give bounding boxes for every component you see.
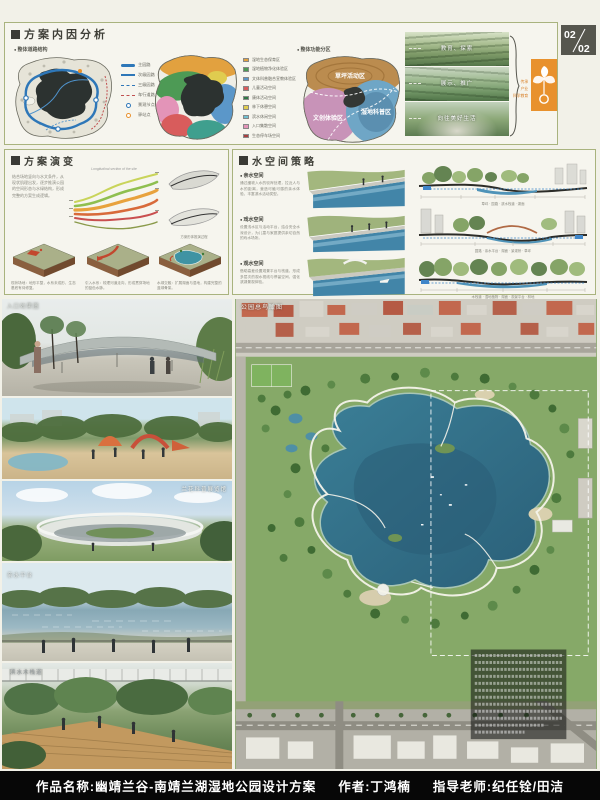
design-notes-panel xyxy=(471,650,567,740)
water-item-label: 观水空间 xyxy=(240,260,300,267)
legend-item: 儿童活动空间 xyxy=(243,84,296,94)
road-legend: 主园路 次级园路 三级园路 车行道路 景观节点 驿站点 xyxy=(121,60,155,120)
water-item-text: 设置浅水区与活动平台，结合安全水深设计，为儿童与家庭提供亲切自然的戏水场所。 xyxy=(240,225,300,242)
section-water-strategy: 水空间策略 亲水空间 通过缓坡入水的驳岸处理，拉近人与水的距离，营造可触可感的亲… xyxy=(232,149,596,295)
aerial-caption: 公园总鸟瞰图 xyxy=(241,302,283,311)
legend-item: 文体科普融合宣教体验区 xyxy=(243,74,296,84)
evolution-step-2 xyxy=(85,242,151,280)
page-number-badge: 02 02 xyxy=(561,25,596,55)
section-scheme-analysis: 方案内因分析 整体道路结构 主园路 次级园路 三级园路 车行道路 景观节点 驿站… xyxy=(4,22,558,145)
footer-project-name: 作品名称:幽靖兰谷-南靖兰湖湿地公园设计方案 xyxy=(36,776,316,795)
section-label: 草坪 · 园路 · 滨水栈道 · 湖面 xyxy=(415,201,591,206)
step-caption: 水绿交融：扩展湖面与湿地，构建完整的蓝绿骨架。 xyxy=(157,281,223,291)
render-orchid-pavilion: 兰花科普展览馆 xyxy=(2,481,232,561)
water-item-text: 借助高差设置观景平台与栈道，形成多层次的观水视线与停留空间，强化滨湖景观体验。 xyxy=(240,269,300,286)
footer-author: 作者:丁鸿楠 xyxy=(338,776,411,795)
photo-caption: 教育、探索 xyxy=(405,44,509,52)
boardwalk-illustration xyxy=(2,663,232,769)
analysis-title: 方案内因分析 xyxy=(24,26,108,42)
section-marker-icon xyxy=(11,30,20,39)
footer-bar: 作品名称:幽靖兰谷-南靖兰湖湿地公园设计方案 作者:丁鸿楠 指导老师:纪任铨/田… xyxy=(0,771,600,800)
page-total: 02 xyxy=(578,43,590,55)
reference-photo-education: 教育、探索 xyxy=(405,32,509,66)
terrain-diagram-3 xyxy=(305,256,409,298)
evolution-intro: 结合场地竖向与水文条件，从现状肌理出发，逐步推演公园的空间形态与水绿结构，形成完… xyxy=(12,174,64,199)
water-item-label: 戏水空间 xyxy=(240,216,300,223)
playground-illustration xyxy=(2,398,232,479)
sketch-caption: 方案形体推演过程 xyxy=(180,234,208,239)
legend-item: 次级园路 xyxy=(121,70,155,80)
function-zone-map xyxy=(151,52,239,144)
reference-photo-display: 展示、推广 xyxy=(405,67,509,101)
platform-illustration xyxy=(2,563,232,661)
render-entrance: 入口效果图 xyxy=(2,299,232,396)
section-drawing-2: 园路 · 亲水平台 · 湖面 · 景观桥 · 草坪 xyxy=(415,207,591,253)
zoning-map: 草坪活动区 文创体验区 湿地科普区 xyxy=(298,52,404,146)
road-structure-label: 整体道路结构 xyxy=(14,46,48,53)
legend-item: 景观节点 xyxy=(121,100,155,110)
step-caption: 引入水系：梳理河道走向，形成贯穿场地的蓝色水脉。 xyxy=(85,281,151,291)
legend-item: 湿地植物净化体验区 xyxy=(243,65,296,75)
keyword: 传承 xyxy=(513,79,528,86)
legend-item: 康体活动空间 xyxy=(243,93,296,103)
page-current: 02 xyxy=(564,29,576,41)
step-caption: 现状场地：地形平整，水系未成形，生态基底有待修复。 xyxy=(11,281,77,291)
photo-caption: 展示、推广 xyxy=(405,79,509,87)
legend-item: 主园路 xyxy=(121,60,155,70)
render-caption: 滨水木栈道 xyxy=(10,668,43,676)
legend-item: 三级园路 xyxy=(121,80,155,90)
pavilion-illustration xyxy=(2,481,232,561)
flow-diagram-title: Longitudinal section of the site xyxy=(91,167,137,171)
entrance-illustration xyxy=(2,299,232,396)
zone-label: 湿地科普区 xyxy=(361,108,391,116)
function-legend: 湿地生态保育区 湿地植物净化体验区 文体科普融合宣教体验区 儿童活动空间 康体活… xyxy=(243,55,296,141)
render-caption: 兰花科普展览馆 xyxy=(181,485,227,493)
section-drawing-1: 草坪 · 园路 · 滨水栈道 · 湖面 xyxy=(415,160,591,206)
legend-item: 车行道路 xyxy=(121,90,155,100)
evolution-step-1 xyxy=(11,242,77,280)
orchid-logo-icon xyxy=(531,59,557,111)
legend-item: 入口集散空间 xyxy=(243,122,296,132)
footer-advisor: 指导老师:纪任铨/田洁 xyxy=(433,776,564,795)
terrain-diagram-2 xyxy=(305,212,409,254)
section-drawing-3: 木栈道 · 湿地植物 · 湖面 · 观景平台 · 林地 xyxy=(415,253,591,299)
water-header: 水空间策略 xyxy=(239,153,317,168)
water-item-text: 通过缓坡入水的驳岸处理，拉近人与水的距离，营造可触可感的亲水体验，丰富滨水活动类… xyxy=(240,181,300,198)
legend-item: 滨水休闲空间 xyxy=(243,112,296,122)
zone-label: 草坪活动区 xyxy=(335,72,365,80)
water-title: 水空间策略 xyxy=(252,153,317,168)
legend-item: 林下休憩空间 xyxy=(243,103,296,113)
render-caption: 入口效果图 xyxy=(7,302,40,310)
aerial-illustration xyxy=(235,299,597,769)
legend-item: 生态停车场空间 xyxy=(243,131,296,141)
keyword: 产业 xyxy=(513,86,528,93)
render-boardwalk: 滨水木栈道 xyxy=(2,663,232,769)
keyword: 科学教育 xyxy=(513,93,528,100)
road-structure-map xyxy=(10,54,116,142)
render-caption: 亲水平台 xyxy=(7,571,33,579)
photo-caption: 向往美好生活 xyxy=(405,114,509,122)
water-item-2: 戏水空间 设置浅水区与活动平台，结合安全水深设计，为儿童与家庭提供亲切自然的戏水… xyxy=(240,216,300,242)
reference-photo-life: 向往美好生活 xyxy=(405,102,509,136)
render-water-platform: 亲水平台 xyxy=(2,563,232,661)
section-marker-icon xyxy=(11,156,20,165)
zone-label: 文创体验区 xyxy=(312,114,343,122)
reference-photos: 教育、探索 展示、推广 向往美好生活 xyxy=(405,32,509,137)
concept-keywords: 传承 产业 科学教育 xyxy=(513,79,528,101)
legend-item: 湿地生态保育区 xyxy=(243,55,296,65)
analysis-header: 方案内因分析 xyxy=(11,26,108,42)
section-scheme-evolution: 方案演变 结合场地竖向与水文条件，从现状肌理出发，逐步推演公园的空间形态与水绿结… xyxy=(4,149,229,295)
form-sketches: 方案形体推演过程 xyxy=(163,164,225,244)
evolution-step-3 xyxy=(157,242,223,280)
evolution-flow-diagram: Longitudinal section of the site xyxy=(67,164,161,238)
render-playground xyxy=(2,398,232,479)
legend-item: 驿站点 xyxy=(121,110,155,120)
terrain-diagram-1 xyxy=(305,168,409,210)
water-item-1: 亲水空间 通过缓坡入水的驳岸处理，拉近人与水的距离，营造可触可感的亲水体验，丰富… xyxy=(240,172,300,198)
water-item-3: 观水空间 借助高差设置观景平台与栈道，形成多层次的观水视线与停留空间，强化滨湖景… xyxy=(240,260,300,286)
aerial-view: 公园总鸟瞰图 xyxy=(235,299,597,769)
water-item-label: 亲水空间 xyxy=(240,172,300,179)
section-marker-icon xyxy=(239,156,248,165)
